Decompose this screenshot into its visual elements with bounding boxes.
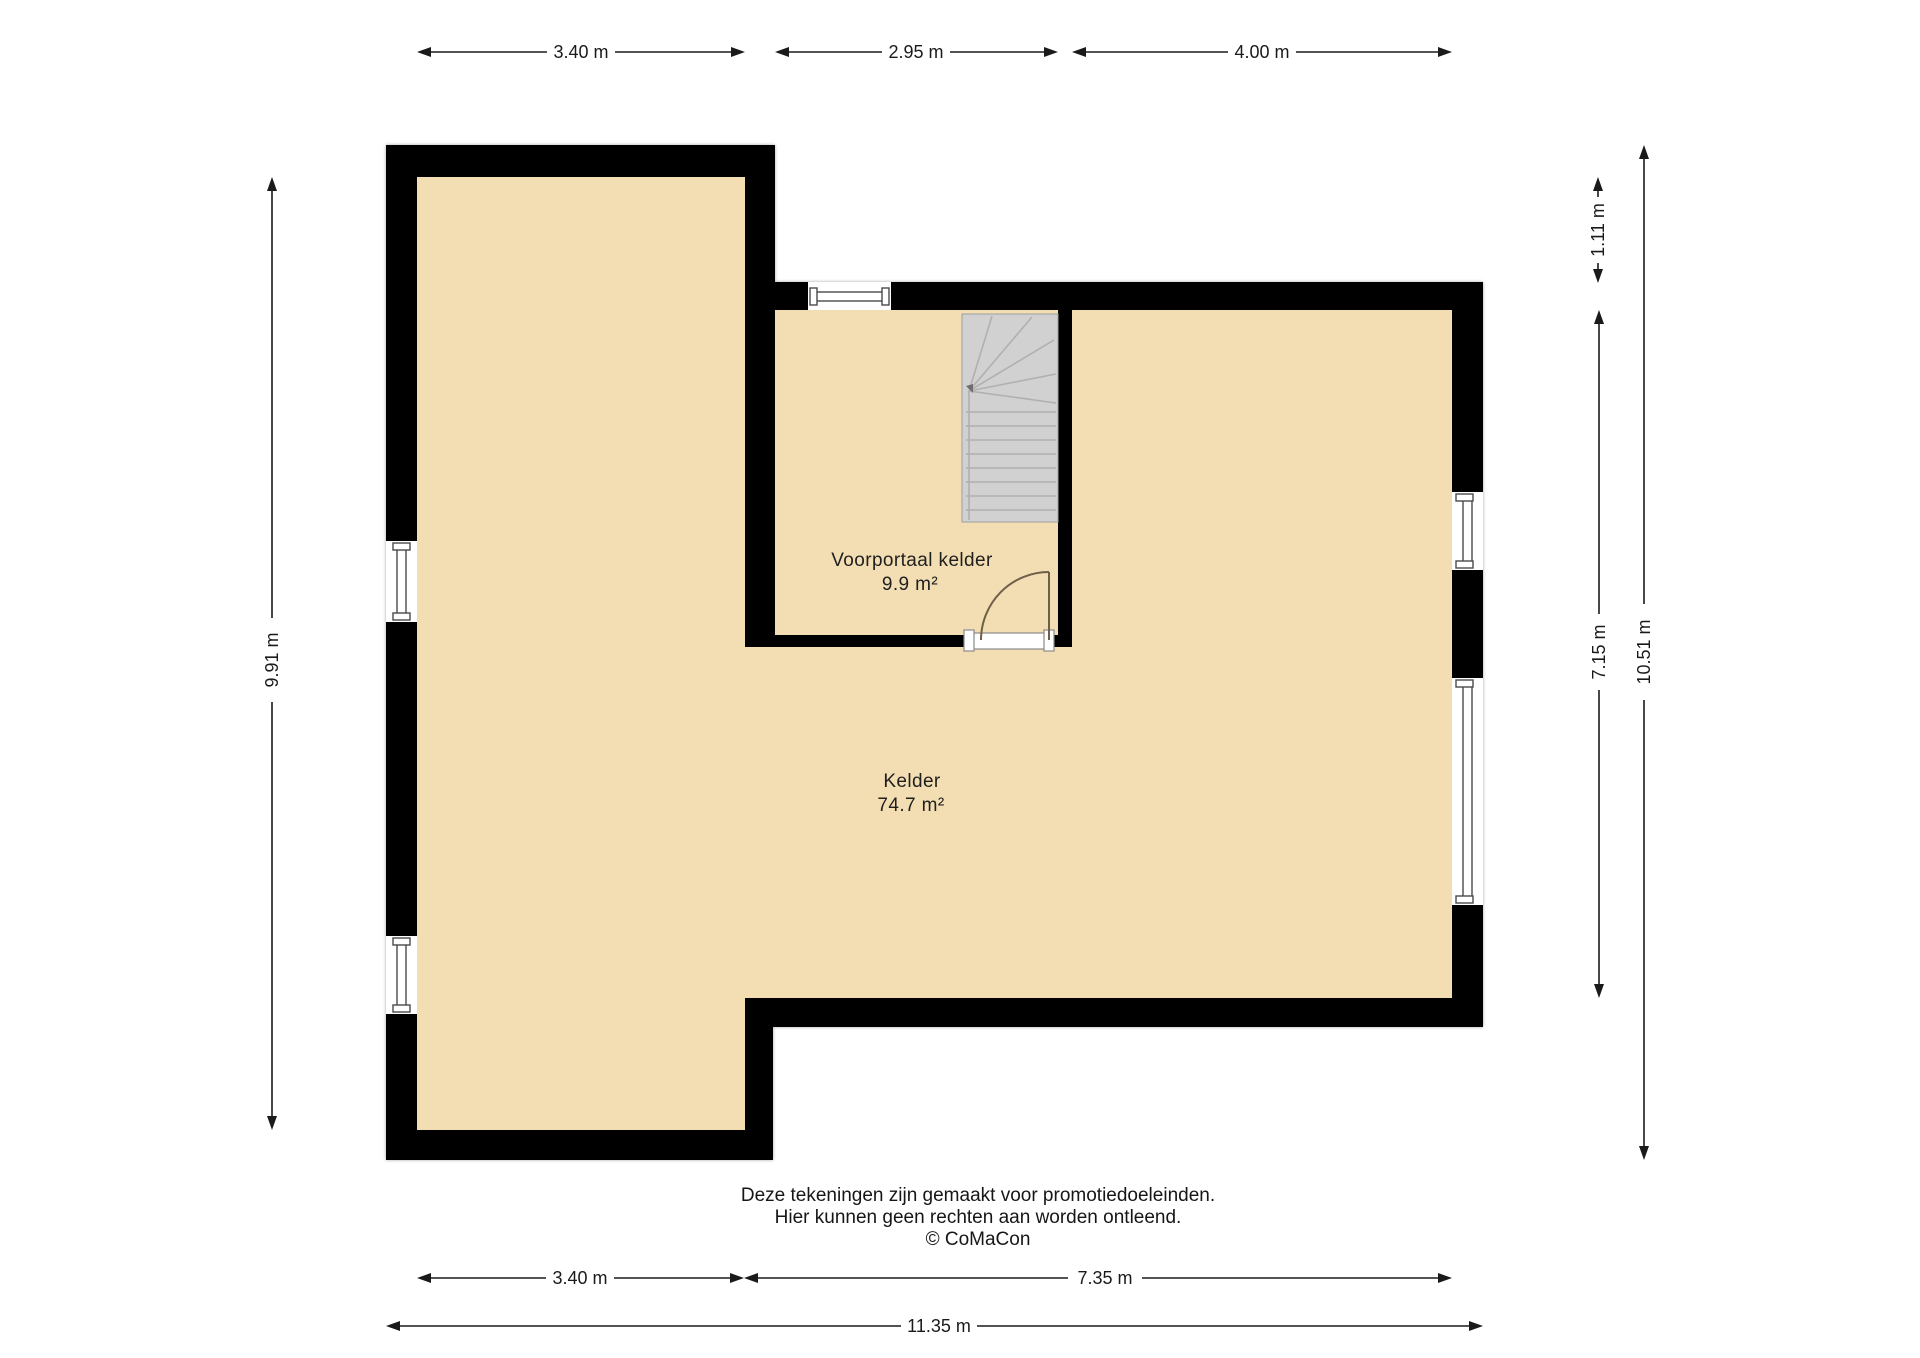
floorplan-page: Voorportaal kelder 9.9 m² Kelder 74.7 m²… [0,0,1920,1358]
footer-disclaimer: Deze tekeningen zijn gemaakt voor promot… [741,1185,1215,1250]
dimension-label-top-2: 2.95 m [888,42,943,62]
dimension-right-111: 1.11 m [1588,177,1608,283]
dimension-label-right-1: 1.11 m [1588,203,1608,257]
window-left-lower [386,936,417,1014]
dimension-top-295: 2.95 m [775,42,1058,62]
footer-line-1: Deze tekeningen zijn gemaakt voor promot… [741,1185,1215,1206]
dimension-label-right-2: 7.15 m [1589,624,1609,679]
dimension-right-715: 7.15 m [1589,310,1609,998]
window-right-upper [1452,492,1483,570]
floorplan-canvas: Voorportaal kelder 9.9 m² Kelder 74.7 m²… [0,0,1920,1358]
dimension-label-bottom-3: 11.35 m [907,1316,971,1336]
dimension-bottom-1135: 11.35 m [386,1316,1483,1336]
room-kelder-left-wing-floor [417,177,745,1130]
interior-wall-left-wing [745,145,775,647]
dimension-right-1051: 10.51 m [1634,145,1654,1160]
dimension-top-400: 4.00 m [1072,42,1452,62]
room-area-kelder: 74.7 m² [877,795,944,816]
footer-copyright: © CoMaCon [926,1229,1031,1250]
dimension-label-top-1: 3.40 m [553,42,608,62]
footer-line-2: Hier kunnen geen rechten aan worden ontl… [775,1207,1182,1228]
dimension-label-right-3: 10.51 m [1634,619,1654,684]
room-label-kelder: Kelder [883,771,941,792]
dimension-label-bottom-1: 3.40 m [552,1268,607,1288]
window-left-upper [386,541,417,622]
dimension-label-bottom-2: 7.35 m [1077,1268,1132,1288]
dimension-left-991: 9.91 m [262,177,282,1130]
window-right-lower [1452,678,1483,905]
room-area-voorportaal: 9.9 m² [882,574,938,595]
interior-wall-stairwell [1058,310,1072,647]
dimension-label-left-1: 9.91 m [262,632,282,687]
dimension-bottom-340: 3.40 m [417,1268,744,1288]
dimension-label-top-3: 4.00 m [1234,42,1289,62]
room-label-voorportaal: Voorportaal kelder [831,550,993,571]
dimension-bottom-735: 7.35 m [744,1268,1452,1288]
dimension-top-340: 3.40 m [417,42,745,62]
staircase [962,314,1058,522]
window-top [808,282,891,310]
room-kelder-main-floor [745,310,1452,998]
building [386,145,1483,1160]
